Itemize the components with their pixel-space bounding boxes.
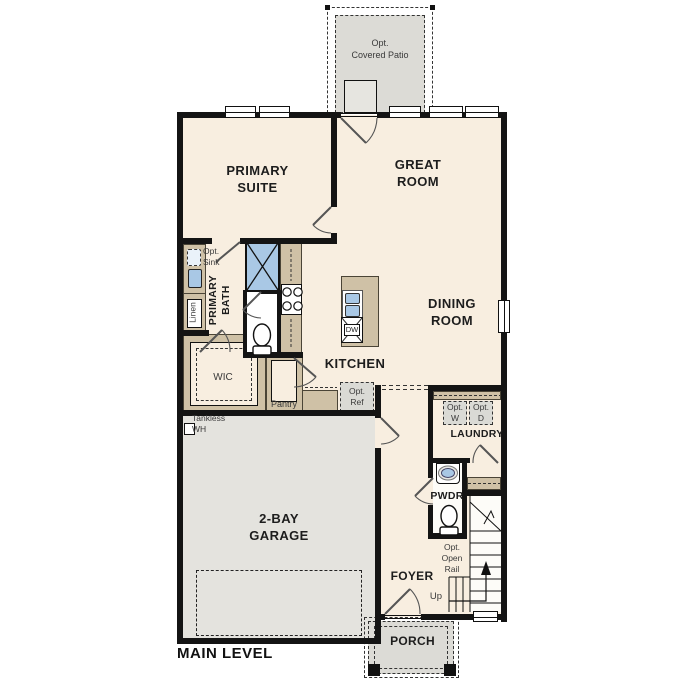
tankless-wh-label: Tankless WH — [190, 413, 236, 435]
plan-linework — [0, 0, 687, 687]
pantry-door — [294, 358, 316, 387]
wic-label: WIC — [208, 371, 238, 384]
stair-rail — [449, 577, 470, 612]
shower-x — [247, 243, 278, 290]
patio-door — [341, 118, 377, 143]
dw-label: DW — [346, 325, 359, 335]
linen-label: Linen — [187, 297, 198, 329]
wc-door — [243, 292, 261, 318]
primary-suite-label: PRIMARY SUITE — [200, 162, 315, 196]
dining-room-label: DINING ROOM — [398, 295, 506, 329]
bath-toilet — [253, 324, 271, 355]
opt-open-rail-label: Opt. Open Rail — [436, 542, 468, 575]
porch-label: PORCH — [389, 634, 436, 648]
kitchen-foyer-opening — [382, 386, 428, 390]
pwdr-toilet — [440, 506, 458, 536]
great-room-label: GREAT ROOM — [362, 156, 474, 190]
sheet-title: MAIN LEVEL — [177, 645, 307, 662]
suite-door — [313, 207, 331, 233]
cooktop-burners — [283, 288, 302, 310]
floor-plan: Opt. Ref Opt. W Opt. D — [0, 0, 687, 687]
kitchen-label: KITCHEN — [322, 355, 388, 372]
up-label: Up — [426, 591, 446, 603]
laundry-label: LAUNDRY — [448, 428, 506, 441]
pwdr-label: PWDR — [428, 490, 466, 503]
pantry-label: Pantry — [264, 399, 304, 411]
dw-chip: DW — [344, 324, 360, 336]
opt-covered-patio-label: Opt. Covered Patio — [336, 38, 424, 61]
laundry-door — [473, 445, 498, 463]
primary-bath-label: PRIMARY BATH — [207, 260, 233, 340]
foyer-label: FOYER — [388, 569, 436, 583]
opt-sink-label: Opt. Sink — [203, 246, 231, 268]
front-door — [385, 589, 420, 614]
garage-label: 2-BAY GARAGE — [228, 510, 330, 544]
pwdr-sink — [439, 466, 458, 480]
garage-entry-door — [381, 418, 399, 444]
